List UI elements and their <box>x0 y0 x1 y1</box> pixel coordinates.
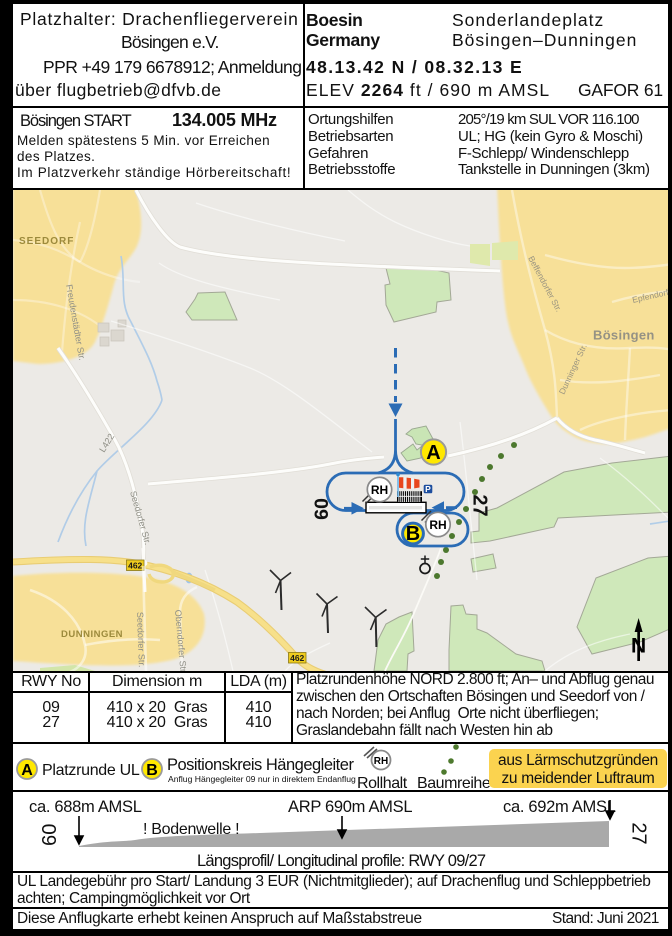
svg-text:27: 27 <box>468 494 490 516</box>
svg-text:09: 09 <box>310 498 332 520</box>
svg-text:ARP 690m AMSL: ARP 690m AMSL <box>288 798 412 816</box>
svg-text:Baumreihe: Baumreihe <box>417 775 491 790</box>
svg-text:Rollhalt: Rollhalt <box>357 775 408 790</box>
svg-text:DUNNINGEN: DUNNINGEN <box>61 629 123 640</box>
svg-text:B: B <box>406 523 420 545</box>
svg-text:A: A <box>426 442 440 464</box>
svg-text:Bösingen: Bösingen <box>593 328 655 343</box>
svg-text:09: 09 <box>37 824 59 846</box>
svg-text:462: 462 <box>290 653 304 663</box>
svg-text:Anflug Hängegleiter 09 nur in: Anflug Hängegleiter 09 nur in direktem E… <box>168 774 356 784</box>
svg-text:P: P <box>425 484 431 494</box>
svg-text:N: N <box>631 635 646 658</box>
svg-text:462: 462 <box>128 560 142 570</box>
svg-text:zu meidender Luftraum: zu meidender Luftraum <box>501 770 654 787</box>
svg-text:B: B <box>146 762 158 779</box>
svg-text:Längsprofil/ Longitudinal prof: Längsprofil/ Longitudinal profile: RWY 0… <box>197 852 486 870</box>
svg-text:Platzrunde UL: Platzrunde UL <box>42 762 140 779</box>
svg-text:aus Lärmschutzgründen: aus Lärmschutzgründen <box>498 752 658 769</box>
svg-text:RH: RH <box>371 483 388 497</box>
svg-text:27: 27 <box>628 822 650 844</box>
svg-text:RH: RH <box>429 518 446 532</box>
svg-text:RH: RH <box>374 756 388 767</box>
svg-text:! Bodenwelle !: ! Bodenwelle ! <box>143 821 239 838</box>
svg-text:SEEDORF: SEEDORF <box>19 236 74 247</box>
svg-text:Positionskreis Hängegleiter: Positionskreis Hängegleiter <box>167 756 354 774</box>
svg-text:Seedorfer Str.: Seedorfer Str. <box>135 612 147 668</box>
svg-text:ca. 692m AMSL: ca. 692m AMSL <box>503 798 616 816</box>
svg-text:A: A <box>21 762 33 779</box>
svg-text:ca. 688m AMSL: ca. 688m AMSL <box>29 798 142 816</box>
